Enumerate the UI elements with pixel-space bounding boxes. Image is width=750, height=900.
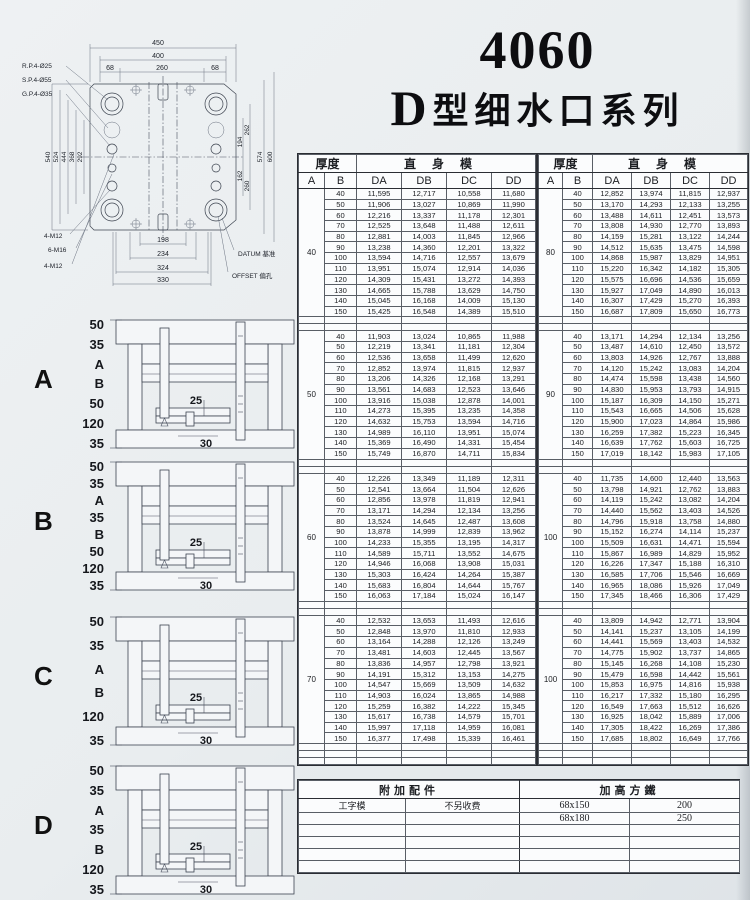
dimension-value: 15,711	[402, 548, 447, 559]
empty-cell	[593, 459, 632, 466]
return-pin-label: R.P.4-Ø25	[22, 63, 52, 70]
dimension-value: 16,725	[710, 438, 748, 449]
dimension-value: 15,242	[632, 363, 671, 374]
empty-cell	[593, 744, 632, 751]
dim-label: 50	[90, 460, 104, 473]
empty-cell	[357, 601, 402, 608]
dimension-value: 11,988	[492, 331, 536, 342]
table-row: 13015,30316,42414,26415,387	[299, 569, 536, 580]
dimension-value: 14,009	[447, 295, 492, 306]
empty-cell	[357, 744, 402, 751]
empty-cell	[539, 459, 563, 466]
dimension-value: 16,696	[632, 274, 671, 285]
table-row: 9014,83015,95313,79314,915	[539, 384, 748, 395]
empty-cell	[402, 459, 447, 466]
dimension-value: 13,883	[710, 484, 748, 495]
b-thickness-value: 130	[325, 285, 357, 296]
empty-cell	[520, 849, 630, 861]
dimension-value: 12,852	[357, 363, 402, 374]
empty-cell	[539, 608, 563, 615]
empty-cell	[325, 751, 357, 758]
accessories-cell: 68x180	[520, 813, 630, 825]
dimension-value: 12,966	[492, 231, 536, 242]
dimension-value: 14,716	[402, 253, 447, 264]
dimension-value: 13,083	[671, 363, 710, 374]
dimension-value: 17,762	[632, 438, 671, 449]
dimension-value: 11,903	[357, 331, 402, 342]
dimension-value: 17,118	[402, 722, 447, 733]
table-row: 8014,79615,91813,75814,880	[539, 516, 748, 527]
b-thickness-value: 120	[325, 701, 357, 712]
dim-label: B	[95, 686, 104, 699]
a-thickness-value: 50	[299, 331, 325, 459]
spacer-row	[299, 758, 536, 765]
page-title: 4060 D 型细水口系列	[330, 22, 745, 137]
b-thickness-value: 90	[563, 384, 593, 395]
dimension-value: 15,509	[593, 537, 632, 548]
dimension-value: 16,424	[402, 569, 447, 580]
dimension-value: 13,594	[357, 253, 402, 264]
empty-cell	[492, 608, 536, 615]
b-thickness-value: 100	[563, 679, 593, 690]
empty-cell	[710, 758, 748, 765]
dimension-value: 14,589	[357, 548, 402, 559]
dimension-value: 15,543	[593, 406, 632, 417]
dimension-value: 16,738	[402, 711, 447, 722]
dimension-value: 16,773	[710, 306, 748, 317]
b-thickness-value: 50	[563, 341, 593, 352]
dimension-value: 13,024	[402, 331, 447, 342]
b-thickness-value: 130	[563, 569, 593, 580]
dimension-value: 13,951	[447, 427, 492, 438]
dimension-value: 14,959	[447, 722, 492, 733]
dimension-value: 13,082	[671, 494, 710, 505]
table-row: 6013,48814,61112,45113,573	[539, 210, 748, 221]
dimension-value: 15,926	[671, 580, 710, 591]
dimension-value: 13,475	[671, 242, 710, 253]
b-thickness-value: 40	[325, 473, 357, 484]
table-row: 7014,12015,24213,08314,204	[539, 363, 748, 374]
empty-cell	[593, 758, 632, 765]
dimension-value: 13,974	[402, 363, 447, 374]
riser-block-header: 加高方鐵	[520, 781, 740, 799]
dim-444: 444	[61, 151, 68, 162]
table-row: 10014,23315,35513,19514,317	[299, 537, 536, 548]
dimension-value: 14,512	[593, 242, 632, 253]
empty-cell	[539, 744, 563, 751]
b-thickness-value: 150	[325, 448, 357, 459]
b-thickness-value: 80	[563, 658, 593, 669]
table-row: 7013,48114,60312,44513,567	[299, 647, 536, 658]
b-thickness-value: 130	[325, 711, 357, 722]
dimension-value: 13,170	[593, 199, 632, 210]
dimension-value: 14,868	[593, 253, 632, 264]
a-thickness-value: 70	[299, 615, 325, 743]
empty-cell	[563, 744, 593, 751]
b-thickness-value: 110	[563, 263, 593, 274]
dimension-value: 14,288	[402, 637, 447, 648]
dimension-value: 15,834	[492, 448, 536, 459]
empty-cell	[671, 324, 710, 331]
dimension-value: 13,951	[357, 263, 402, 274]
dim-label: 50	[90, 318, 104, 331]
empty-cell	[299, 744, 325, 751]
table-row: 14017,30518,42216,26917,386	[539, 722, 748, 733]
dimension-value: 16,024	[402, 690, 447, 701]
dim-label: B	[95, 843, 104, 856]
dimension-value: 12,878	[447, 395, 492, 406]
dimension-value: 17,347	[632, 559, 671, 570]
accessories-table-grid: 附加配件 加高方鐵 工字模不另收费68x15020068x180250	[298, 780, 740, 873]
dimension-value: 16,345	[710, 427, 748, 438]
col-header-dd: DD	[710, 173, 748, 189]
dimension-value: 13,291	[492, 374, 536, 385]
b-thickness-value: 140	[325, 438, 357, 449]
empty-cell	[632, 601, 671, 608]
empty-cell	[402, 751, 447, 758]
section-diagram-a: A 5035AB5012035 25 30	[24, 316, 309, 452]
plan-drawing-svg: 450 400 68 260 68 540 524 444 368 292	[18, 18, 314, 310]
dimension-value: 14,999	[402, 526, 447, 537]
dimension-value: 14,119	[593, 494, 632, 505]
dimension-value: 16,342	[632, 263, 671, 274]
dimension-value: 14,816	[671, 679, 710, 690]
empty-cell	[632, 744, 671, 751]
table-row: 11014,27315,39513,23514,358	[299, 406, 536, 417]
b-thickness-value: 80	[563, 374, 593, 385]
dimension-value: 14,141	[593, 626, 632, 637]
spacer-row	[539, 601, 748, 608]
dimension-value: 12,770	[671, 221, 710, 232]
empty-cell	[325, 608, 357, 615]
diagram-letter: C	[34, 661, 53, 692]
dimension-value: 13,829	[671, 253, 710, 264]
table-row: 8015,14516,26814,10815,230	[539, 658, 748, 669]
dimension-value: 12,933	[492, 626, 536, 637]
dimension-value: 13,561	[357, 384, 402, 395]
table-row: 5013,17014,29312,13313,255	[539, 199, 748, 210]
dimension-value: 14,579	[447, 711, 492, 722]
col-header-dc: DC	[447, 173, 492, 189]
b-thickness-value: 140	[563, 295, 593, 306]
dimension-value: 14,645	[402, 516, 447, 527]
empty-cell	[492, 459, 536, 466]
dim-label: 35	[90, 338, 104, 351]
dimension-value: 15,749	[357, 448, 402, 459]
table-row: 8014,15915,28113,12214,244	[539, 231, 748, 242]
dimension-value: 15,242	[632, 494, 671, 505]
dimension-value: 14,001	[492, 395, 536, 406]
dimension-value: 15,223	[671, 427, 710, 438]
dim-450: 450	[152, 40, 164, 47]
inner-dim-label: 30	[200, 884, 212, 896]
dimension-value: 15,889	[671, 711, 710, 722]
dimension-value: 11,990	[492, 199, 536, 210]
dimension-value: 13,171	[593, 331, 632, 342]
accessories-cell: 200	[630, 799, 740, 813]
b-thickness-value: 90	[563, 669, 593, 680]
b-thickness-value: 120	[563, 559, 593, 570]
table-row: 12014,30915,43113,27214,393	[299, 274, 536, 285]
empty-cell	[325, 758, 357, 765]
empty-cell	[563, 758, 593, 765]
dimension-value: 16,549	[593, 701, 632, 712]
dimension-value: 14,441	[593, 637, 632, 648]
a-thickness-value: 100	[539, 473, 563, 601]
diagram-art: 25 30	[108, 613, 304, 749]
dimension-value: 16,626	[710, 701, 748, 712]
empty-cell	[447, 324, 492, 331]
b-thickness-value: 150	[563, 591, 593, 602]
offset-label: OFFSET 偏孔	[232, 271, 273, 280]
dim-260: 260	[156, 65, 168, 72]
dimension-value: 15,031	[492, 559, 536, 570]
empty-cell	[632, 608, 671, 615]
dimension-value: 15,635	[632, 242, 671, 253]
empty-cell	[447, 608, 492, 615]
empty-cell	[563, 601, 593, 608]
a-thickness-value: 100	[539, 615, 563, 743]
dimension-value: 16,585	[593, 569, 632, 580]
empty-cell	[492, 324, 536, 331]
dimension-value: 11,845	[447, 231, 492, 242]
a-thickness-value: 90	[539, 331, 563, 459]
table-row: 10014,54715,66913,50914,632	[299, 679, 536, 690]
empty-cell	[406, 849, 520, 861]
col-header-b: B	[325, 173, 357, 189]
table-row: 404011,59512,71710,55811,680	[299, 189, 536, 200]
dimension-value: 17,766	[710, 733, 748, 744]
dimension-value: 13,249	[492, 637, 536, 648]
dimension-value: 14,294	[402, 505, 447, 516]
dimension-value: 17,049	[632, 285, 671, 296]
dimension-value: 16,461	[492, 733, 536, 744]
empty-cell	[357, 751, 402, 758]
dimension-value: 14,775	[593, 647, 632, 658]
dim-574: 574	[257, 151, 264, 162]
dimension-value: 13,978	[402, 494, 447, 505]
dim-label: 50	[90, 615, 104, 628]
dimension-value: 14,603	[402, 647, 447, 658]
dim-194: 194	[237, 136, 244, 147]
dimension-value: 13,567	[492, 647, 536, 658]
dimension-value: 14,393	[492, 274, 536, 285]
table-row: 5013,79814,92112,76213,883	[539, 484, 748, 495]
dim-label: 120	[82, 863, 104, 876]
dimension-value: 15,479	[593, 669, 632, 680]
table-row: 7012,52513,64811,48812,611	[299, 221, 536, 232]
dimension-value: 18,086	[632, 580, 671, 591]
dim-label: 35	[90, 639, 104, 652]
accessories-cell: 250	[630, 813, 740, 825]
table-row: 15016,37717,49815,33916,461	[299, 733, 536, 744]
b-thickness-value: 80	[325, 658, 357, 669]
dimension-value: 11,819	[447, 494, 492, 505]
dimension-value: 15,369	[357, 438, 402, 449]
accessories-cell: 不另收费	[406, 799, 520, 813]
dim-234: 234	[157, 251, 169, 258]
dimension-value: 13,206	[357, 374, 402, 385]
b-thickness-value: 70	[325, 505, 357, 516]
empty-cell	[406, 861, 520, 873]
empty-cell	[632, 317, 671, 324]
empty-cell	[299, 751, 325, 758]
dimension-value: 13,349	[402, 473, 447, 484]
dimension-value: 12,487	[447, 516, 492, 527]
table-row: 9013,87814,99912,83913,962	[299, 526, 536, 537]
empty-cell	[325, 744, 357, 751]
b-thickness-value: 50	[563, 626, 593, 637]
spacer-row	[299, 751, 536, 758]
table-row: 14015,99717,11814,95916,081	[299, 722, 536, 733]
dimension-value: 14,222	[447, 701, 492, 712]
dimension-value: 15,987	[632, 253, 671, 264]
table-row: 14016,96518,08615,92617,049	[539, 580, 748, 591]
table-row: 10015,85316,97514,81615,938	[539, 679, 748, 690]
b-thickness-value: 120	[563, 701, 593, 712]
dimension-value: 12,771	[671, 615, 710, 626]
dimension-value: 12,450	[671, 341, 710, 352]
dim-324: 324	[157, 265, 169, 272]
dimension-value: 13,878	[357, 526, 402, 537]
b-thickness-value: 80	[563, 516, 593, 527]
b-thickness-value: 50	[325, 341, 357, 352]
dimension-value: 16,377	[357, 733, 402, 744]
dimension-value: 14,951	[710, 253, 748, 264]
dimension-value: 12,762	[671, 484, 710, 495]
dim-label: 35	[90, 511, 104, 524]
table-row: 15015,42516,54814,38915,510	[299, 306, 536, 317]
dimension-value: 14,506	[671, 406, 710, 417]
empty-cell	[539, 601, 563, 608]
dimension-value: 13,487	[593, 341, 632, 352]
dimension-value: 15,425	[357, 306, 402, 317]
b-thickness-value: 70	[325, 221, 357, 232]
diagram-letter: A	[34, 364, 53, 395]
dimension-value: 14,711	[447, 448, 492, 459]
empty-cell	[299, 758, 325, 765]
dimension-value: 13,481	[357, 647, 402, 658]
diagram-dim-labels: 5035AB5012035	[66, 316, 104, 452]
dimension-value: 11,595	[357, 189, 402, 200]
dimension-value: 14,036	[492, 263, 536, 274]
dimension-value: 12,536	[357, 352, 402, 363]
b-thickness-value: 100	[325, 253, 357, 264]
dimension-value: 15,853	[593, 679, 632, 690]
dimension-value: 13,195	[447, 537, 492, 548]
dimension-value: 15,180	[671, 690, 710, 701]
mold-dimension-table: 厚度直身模ABDADBDCDD404011,59512,71710,55811,…	[298, 154, 536, 765]
section-diagram-d: D 5035A35B12035 25 30	[24, 762, 309, 898]
empty-cell	[402, 758, 447, 765]
dimension-value: 16,870	[402, 448, 447, 459]
table-row: 9013,23814,36012,20113,322	[299, 242, 536, 253]
dim-label: A	[95, 663, 104, 676]
dimension-value: 15,900	[593, 416, 632, 427]
dimension-value: 16,063	[357, 591, 402, 602]
dimension-value: 15,188	[671, 559, 710, 570]
spacer-row	[539, 459, 748, 466]
b-thickness-value: 70	[563, 221, 593, 232]
table-row: 8012,88114,00311,84512,966	[299, 231, 536, 242]
dimension-value: 12,201	[447, 242, 492, 253]
dimension-value: 16,259	[593, 427, 632, 438]
dimension-value: 13,809	[593, 615, 632, 626]
dimension-value: 15,303	[357, 569, 402, 580]
b-thickness-value: 80	[325, 231, 357, 242]
dimension-value: 13,255	[710, 199, 748, 210]
dimension-value: 12,523	[447, 384, 492, 395]
dimension-value: 15,659	[710, 274, 748, 285]
table-row: 7014,44015,56213,40314,526	[539, 505, 748, 516]
dimension-value: 14,474	[593, 374, 632, 385]
accessories-row	[299, 825, 740, 837]
dimension-value: 12,616	[492, 615, 536, 626]
dimension-value: 13,524	[357, 516, 402, 527]
col-header-da: DA	[357, 173, 402, 189]
dimension-value: 14,204	[710, 494, 748, 505]
empty-cell	[299, 317, 325, 324]
dim-label: 35	[90, 477, 104, 490]
dimension-value: 14,309	[357, 274, 402, 285]
table-row: 6013,16414,28812,12613,249	[299, 637, 536, 648]
col-header-dd: DD	[492, 173, 536, 189]
dimension-value: 12,881	[357, 231, 402, 242]
dimension-value: 13,337	[402, 210, 447, 221]
b-thickness-value: 100	[325, 679, 357, 690]
b-thickness-value: 140	[563, 580, 593, 591]
dimension-value: 13,105	[671, 626, 710, 637]
empty-cell	[325, 459, 357, 466]
dimension-value: 15,074	[402, 263, 447, 274]
dimension-value: 15,270	[671, 295, 710, 306]
dimension-value: 15,074	[492, 427, 536, 438]
dimension-value: 14,600	[632, 473, 671, 484]
dimension-value: 14,683	[402, 384, 447, 395]
dimension-value: 14,915	[710, 384, 748, 395]
dimension-value: 16,081	[492, 722, 536, 733]
dimension-value: 14,273	[357, 406, 402, 417]
b-thickness-value: 150	[563, 306, 593, 317]
empty-cell	[402, 608, 447, 615]
table-row: 9014,19115,31213,15314,275	[299, 669, 536, 680]
b-thickness-value: 90	[325, 669, 357, 680]
mold-dimension-table: 厚度直身模ABDADBDCDD804012,85213,97411,81512,…	[538, 154, 748, 765]
spacer-row	[539, 324, 748, 331]
empty-cell	[539, 317, 563, 324]
dimension-value: 16,269	[671, 722, 710, 733]
dimension-value: 14,003	[402, 231, 447, 242]
b-thickness-value: 50	[325, 626, 357, 637]
dimension-value: 12,941	[492, 494, 536, 505]
b-thickness-value: 110	[325, 548, 357, 559]
b-thickness-value: 130	[325, 569, 357, 580]
dimension-value: 12,839	[447, 526, 492, 537]
dimension-value: 13,836	[357, 658, 402, 669]
spacer-row	[299, 608, 536, 615]
b-thickness-value: 60	[325, 494, 357, 505]
dimension-value: 13,658	[402, 352, 447, 363]
dimension-value: 12,133	[671, 199, 710, 210]
dimension-value: 18,042	[632, 711, 671, 722]
empty-cell	[299, 459, 325, 466]
dimension-value: 12,219	[357, 341, 402, 352]
diagram-letter: B	[34, 506, 53, 537]
dimension-value: 14,191	[357, 669, 402, 680]
dimension-value: 15,038	[402, 395, 447, 406]
diagram-dim-labels: 5035A35B12035	[66, 762, 104, 898]
col-header-da: DA	[593, 173, 632, 189]
